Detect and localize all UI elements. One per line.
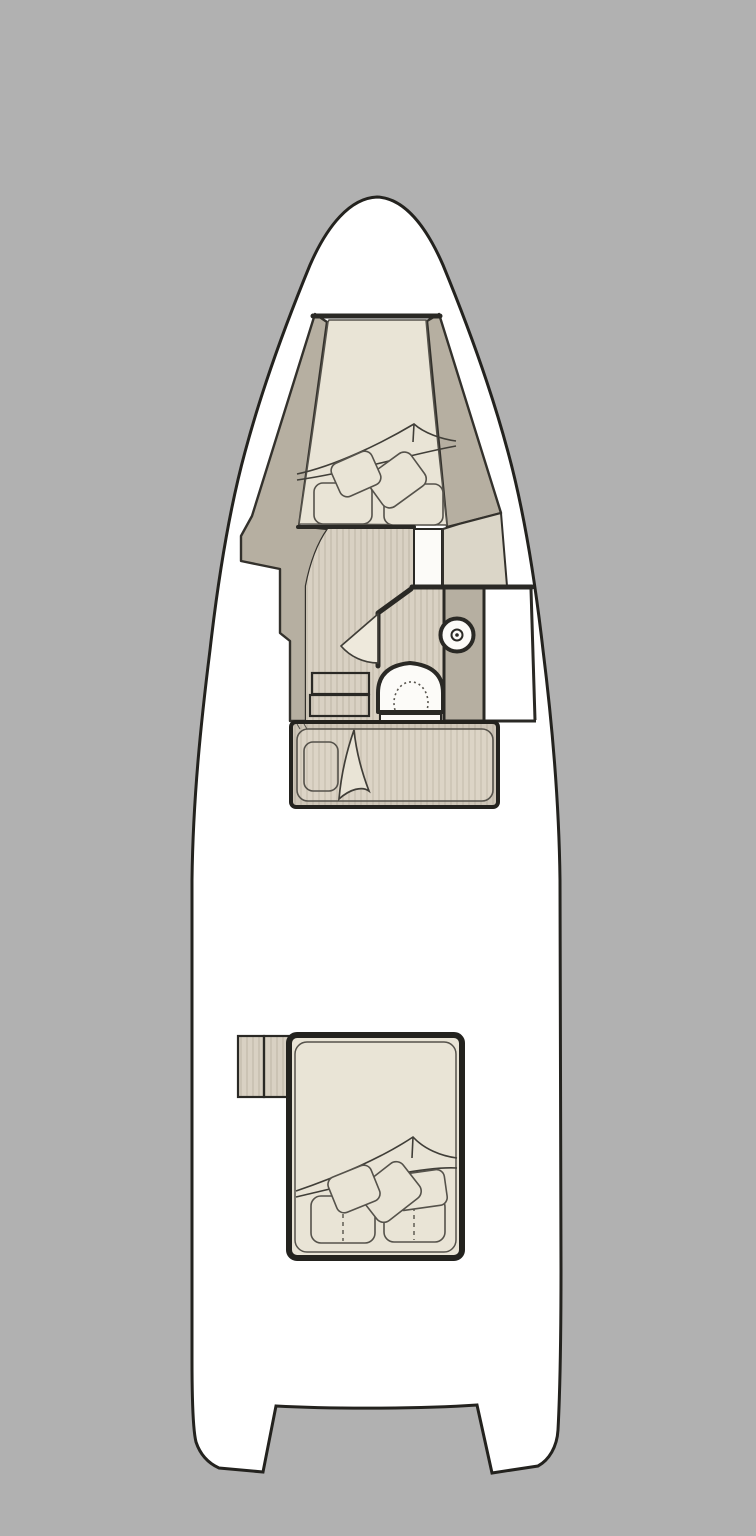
toilet: [378, 663, 443, 721]
toilet-body: [378, 663, 443, 712]
aft-step-left: [238, 1036, 264, 1097]
mid-berth: [291, 722, 498, 807]
washbasin: [441, 619, 474, 652]
floor-plan-canvas: [0, 0, 756, 1536]
head-counter-wall: [444, 587, 484, 721]
toilet-base-strip: [380, 714, 441, 721]
washbasin-drain-dot: [455, 633, 459, 637]
aft-sheet-crease: [412, 1137, 413, 1158]
companionway-step-lower: [310, 695, 369, 716]
doorway-opening: [414, 529, 442, 586]
v-berth-sheet-crease: [413, 424, 414, 442]
companionway-step-upper: [312, 673, 369, 694]
mid-berth-pillow: [304, 742, 338, 791]
